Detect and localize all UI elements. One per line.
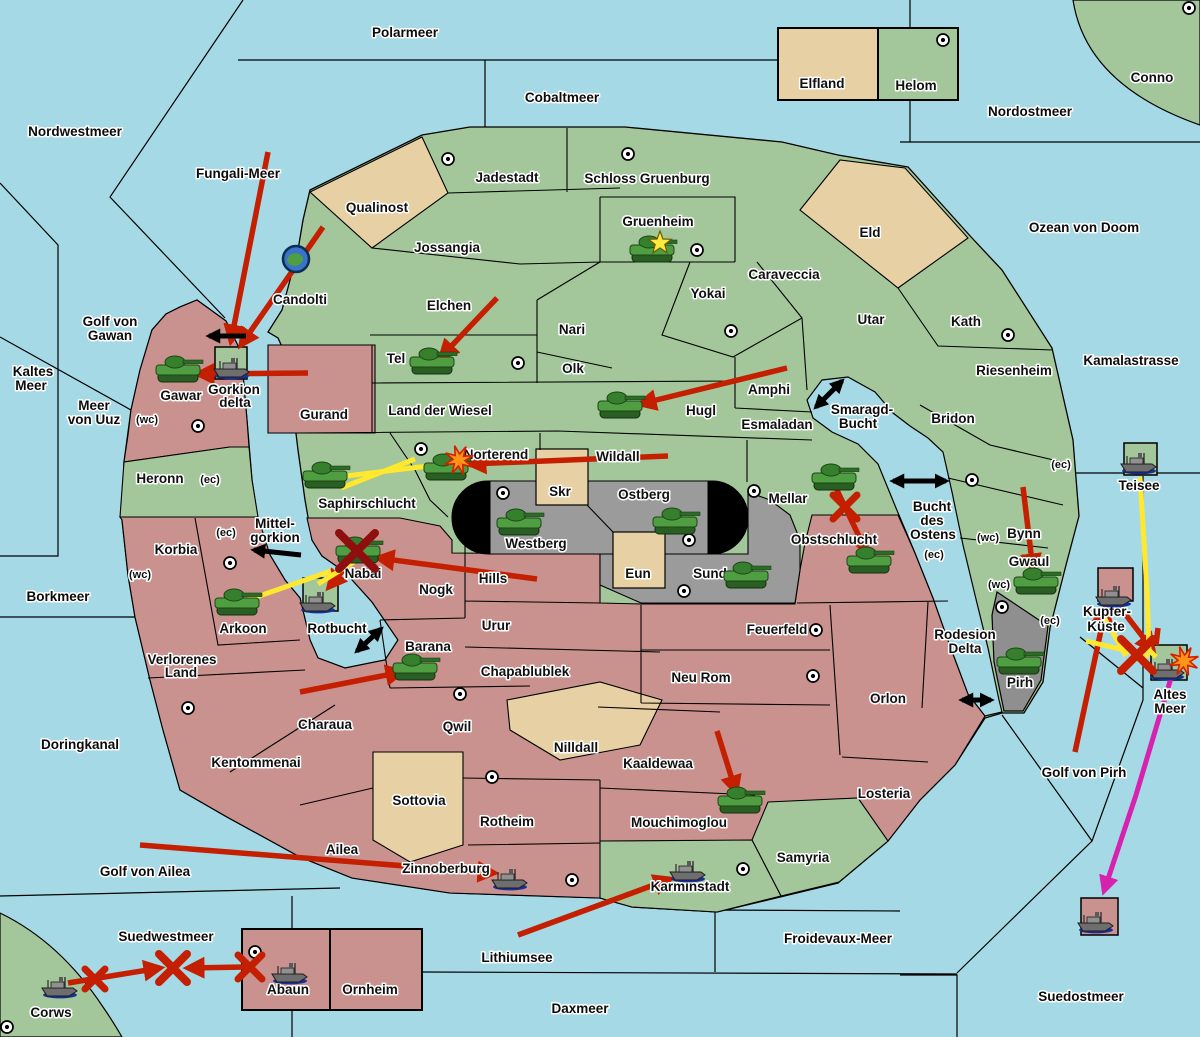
label-skr: Skr [549, 484, 572, 499]
label-nordwestmeer: Nordwestmeer [28, 124, 123, 139]
label-kentommenai: Kentommenai [211, 755, 300, 770]
label-meer: Meer [1154, 701, 1186, 716]
supply-center-dot [725, 325, 737, 337]
coast-tag-wc: (wc) [977, 532, 999, 544]
region-box-ornheim[interactable] [330, 929, 422, 1010]
label-jadestadt: Jadestadt [475, 170, 539, 185]
label-golf-von-ailea: Golf von Ailea [100, 864, 191, 879]
supply-center-dot [748, 485, 760, 497]
label-hugl: Hugl [686, 403, 716, 418]
label-westberg: Westberg [505, 536, 566, 551]
supply-center-dot [678, 585, 690, 597]
label-saphirschlucht: Saphirschlucht [318, 496, 416, 511]
label-von-uuz: von Uuz [68, 412, 121, 427]
label-gorkion: gorkion [250, 530, 300, 545]
label-gurand: Gurand [300, 407, 348, 422]
label-mellar: Mellar [768, 491, 808, 506]
label-urur: Urur [482, 618, 511, 633]
label-fungali-meer: Fungali-Meer [196, 166, 281, 181]
label-elchen: Elchen [427, 298, 471, 313]
coast-tag-wc: (wc) [129, 569, 151, 581]
label-eun: Eun [625, 566, 651, 581]
supply-center-dot [622, 148, 634, 160]
label-cobaltmeer: Cobaltmeer [525, 90, 600, 105]
label-smaragd: Smaragd- [831, 402, 893, 417]
supply-center-dot [486, 771, 498, 783]
label-nari: Nari [559, 322, 585, 337]
label-orlon: Orlon [870, 691, 906, 706]
label-tel: Tel [387, 351, 406, 366]
game-map: { "map": { "title": "Gorkion strategy ma… [0, 0, 1200, 1037]
supply-center-dot [192, 420, 204, 432]
label-conno: Conno [1131, 70, 1174, 85]
move-arrow [188, 967, 246, 968]
supply-center-dot [182, 702, 194, 714]
label-bynn: Bynn [1007, 526, 1041, 541]
move-arrow [1156, 628, 1158, 645]
coast-tag-ec: (ec) [1051, 459, 1071, 471]
label-qualinost: Qualinost [346, 200, 409, 215]
label-golf-von-pirh: Golf von Pirh [1042, 765, 1127, 780]
label-lithiumsee: Lithiumsee [481, 950, 553, 965]
coast-tag-ec: (ec) [924, 549, 944, 561]
label-kaaldewaa: Kaaldewaa [623, 756, 693, 771]
label-rotheim: Rotheim [480, 814, 534, 829]
label-nordostmeer: Nordostmeer [988, 104, 1073, 119]
label-delta: Delta [948, 641, 982, 656]
label-barana: Barana [405, 639, 451, 654]
label-neu-rom: Neu Rom [671, 670, 730, 685]
label-kamalastrasse: Kamalastrasse [1083, 353, 1179, 368]
supply-center-dot [996, 601, 1008, 613]
label-ostberg: Ostberg [618, 487, 670, 502]
label-meer: Meer [15, 378, 47, 393]
supply-center-dot [691, 244, 703, 256]
label-teisee: Teisee [1118, 478, 1160, 493]
label-delta: delta [219, 395, 251, 410]
supply-center-dot [683, 534, 695, 546]
label-obstschlucht: Obstschlucht [791, 532, 878, 547]
label-arkoon: Arkoon [219, 621, 266, 636]
label-gawan: Gawan [88, 328, 132, 343]
move-arrow [198, 373, 308, 374]
supply-center-dot [937, 34, 949, 46]
label-candolti: Candolti [273, 292, 327, 307]
label-amphi: Amphi [748, 382, 790, 397]
label-charaua: Charaua [298, 717, 353, 732]
label-polarmeer: Polarmeer [372, 25, 439, 40]
coast-tag-wc: (wc) [136, 414, 158, 426]
supply-center-dot [810, 624, 822, 636]
label-meer: Meer [78, 398, 110, 413]
label-feuerfeld: Feuerfeld [747, 622, 808, 637]
supply-center-dot [512, 357, 524, 369]
label-ornheim: Ornheim [342, 982, 398, 997]
supply-center-dot [415, 443, 427, 455]
label-schloss-gruenburg: Schloss Gruenburg [584, 171, 709, 186]
label-elfland: Elfland [799, 76, 844, 91]
label-sottovia: Sottovia [392, 793, 446, 808]
label-bridon: Bridon [931, 411, 975, 426]
supply-center-dot [807, 670, 819, 682]
label-suedostmeer: Suedostmeer [1038, 989, 1124, 1004]
supply-center-dot [566, 874, 578, 886]
supply-center-dot [1002, 329, 1014, 341]
supply-center-dot [497, 487, 509, 499]
map-canvas: NordwestmeerPolarmeerCobaltmeerFungali-M… [0, 0, 1200, 1037]
label-borkmeer: Borkmeer [26, 589, 90, 604]
supply-center-dot [454, 688, 466, 700]
supply-center-dot [737, 863, 749, 875]
label-pirh: Pirh [1007, 675, 1033, 690]
label-olk: Olk [562, 361, 584, 376]
label-k-ste: Küste [1087, 619, 1125, 634]
label-ozean-von-doom: Ozean von Doom [1029, 220, 1139, 235]
label-daxmeer: Daxmeer [551, 1001, 609, 1016]
label-bucht: Bucht [839, 416, 878, 431]
label-yokai: Yokai [690, 286, 725, 301]
label-jossangia: Jossangia [414, 240, 481, 255]
label-nogk: Nogk [419, 582, 453, 597]
label-rodesion: Rodesion [934, 627, 996, 642]
label-chapablublek: Chapablublek [481, 664, 570, 679]
coast-tag-ec: (ec) [200, 474, 220, 486]
candolti-roundel-icon [283, 246, 309, 272]
coast-tag-ec: (ec) [216, 527, 236, 539]
supply-center-dot [966, 474, 978, 486]
label-utar: Utar [857, 312, 885, 327]
label-doringkanal: Doringkanal [41, 737, 119, 752]
label-ostens: Ostens [910, 527, 956, 542]
label-esmaladan: Esmaladan [741, 417, 812, 432]
label-suedwestmeer: Suedwestmeer [118, 929, 214, 944]
label-gawar: Gawar [160, 388, 202, 403]
supply-center-dot [1, 1021, 13, 1033]
label-corws: Corws [30, 1005, 71, 1020]
label-norterend: Norterend [464, 447, 529, 462]
label-altes: Altes [1153, 687, 1186, 702]
supply-center-dot [1183, 2, 1195, 14]
label-zinnoberburg: Zinnoberburg [402, 861, 490, 876]
label-ailea: Ailea [326, 842, 359, 857]
label-samyria: Samyria [777, 850, 830, 865]
coast-tag-ec: (ec) [1040, 615, 1060, 627]
label-gwaul: Gwaul [1009, 554, 1050, 569]
label-kaltes: Kaltes [13, 364, 54, 379]
supply-center-dot [224, 557, 236, 569]
label-mouchimoglou: Mouchimoglou [631, 815, 727, 830]
label-kath: Kath [951, 314, 981, 329]
label-bucht: Bucht [913, 499, 952, 514]
label-golf-von: Golf von [83, 314, 138, 329]
label-land: Land [165, 665, 197, 680]
label-caraveccia: Caraveccia [748, 267, 820, 282]
label-losteria: Losteria [858, 786, 911, 801]
coast-tag-wc: (wc) [988, 579, 1010, 591]
label-sund: Sund [693, 566, 727, 581]
label-land-der-wiesel: Land der Wiesel [388, 403, 491, 418]
supply-center-dot [442, 153, 454, 165]
label-wildall: Wildall [596, 449, 639, 464]
label-rotbucht: Rotbucht [307, 621, 367, 636]
label-qwil: Qwil [443, 719, 472, 734]
label-des: des [920, 513, 943, 528]
label-eld: Eld [859, 225, 880, 240]
label-froidevaux-meer: Froidevaux-Meer [784, 931, 893, 946]
label-korbia: Korbia [155, 542, 198, 557]
label-hills: Hills [479, 571, 508, 586]
label-gruenheim: Gruenheim [622, 214, 693, 229]
label-nilldall: Nilldall [554, 740, 598, 755]
label-helom: Helom [895, 78, 936, 93]
label-mittel: Mittel- [255, 516, 295, 531]
label-heronn: Heronn [136, 471, 183, 486]
label-riesenheim: Riesenheim [976, 363, 1052, 378]
